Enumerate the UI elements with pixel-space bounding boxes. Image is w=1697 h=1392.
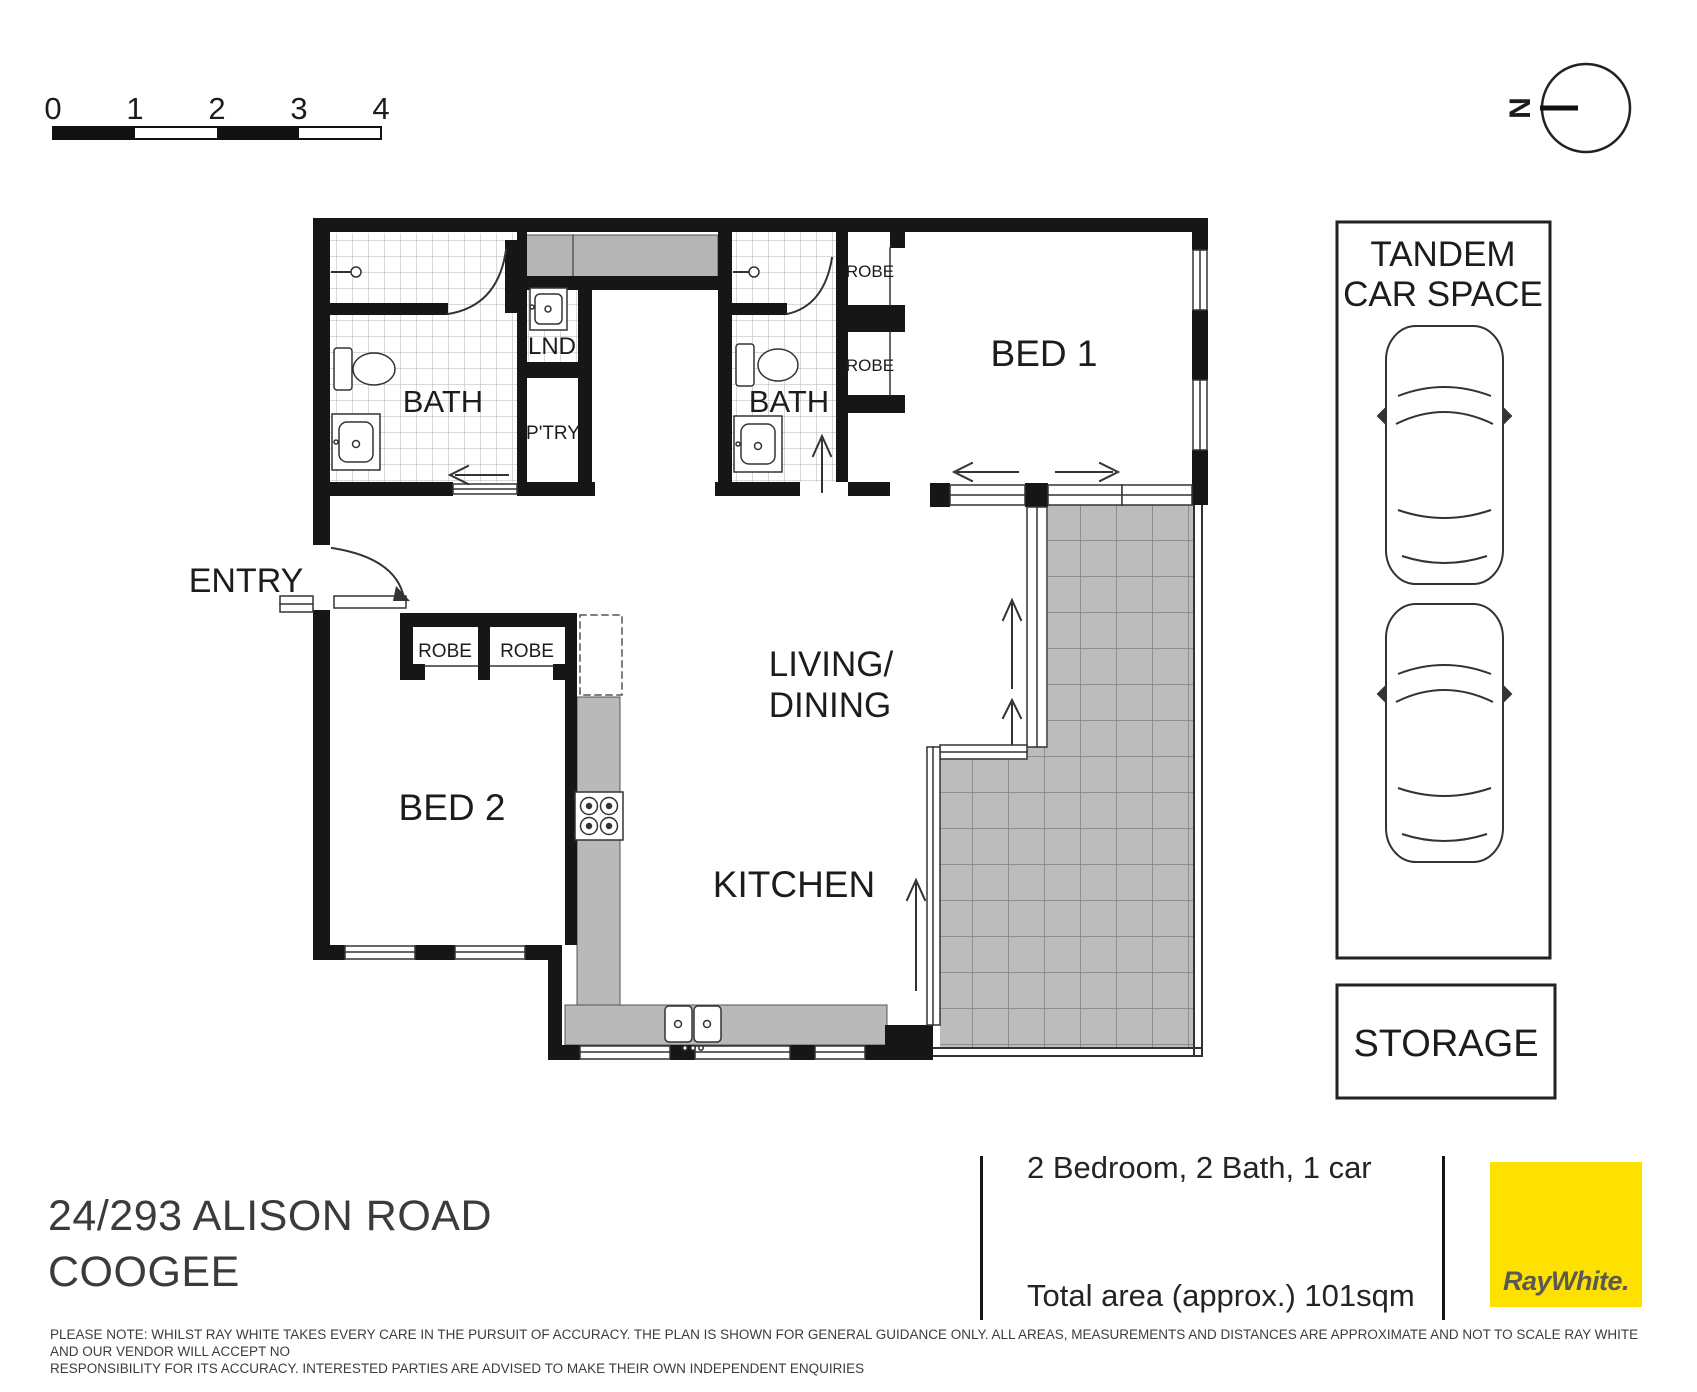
car-space-label-line2: CAR SPACE [1343, 275, 1543, 314]
bed2-robe-left-label: ROBE [418, 641, 472, 662]
address-line2: COOGEE [48, 1244, 492, 1300]
scale-tick-3: 3 [290, 91, 307, 126]
disclaimer-line1: PLEASE NOTE: WHILST RAY WHITE TAKES EVER… [50, 1326, 1660, 1360]
bed2-label: BED 2 [399, 787, 506, 828]
property-summary: 2 Bedroom, 2 Bath, 1 car [1027, 1150, 1372, 1186]
storage-box: STORAGE [1337, 985, 1555, 1098]
scale-tick-0: 0 [44, 91, 61, 126]
toilet-icon [334, 348, 352, 390]
disclaimer-line2: RESPONSIBILITY FOR ITS ACCURACY. INTERES… [50, 1360, 1660, 1377]
laundry-label: LND [528, 333, 576, 360]
kitchen-counter-horizontal [565, 1005, 887, 1045]
car-space-label-line1: TANDEM [1370, 235, 1515, 274]
basin-icon [734, 416, 782, 472]
bed1-robe-bottom-label: ROBE [846, 356, 894, 375]
living-label-line2: DINING [769, 686, 892, 725]
balcony-floor-lower [940, 747, 1194, 1048]
storage-label: STORAGE [1353, 1023, 1538, 1065]
kitchen-label: KITCHEN [713, 864, 875, 905]
scale-tick-2: 2 [208, 91, 225, 126]
toilet-icon [736, 344, 754, 386]
linen-cupboard [525, 235, 718, 278]
bath1-label: BATH [403, 384, 483, 419]
address-line1: 24/293 ALISON ROAD [48, 1188, 492, 1244]
raywhite-logo: RayWhite. [1490, 1162, 1642, 1307]
pantry-label: P'TRY [526, 423, 580, 444]
kitchen-overhead-cupboard [580, 615, 622, 695]
balcony-floor [1048, 505, 1194, 747]
bed1-robe-top-label: ROBE [846, 262, 894, 281]
property-address: 24/293 ALISON ROAD COOGEE [48, 1188, 492, 1300]
bed1-label: BED 1 [991, 333, 1098, 374]
total-area: Total area (approx.) 101sqm [1027, 1278, 1415, 1314]
cooktop-icon [575, 792, 623, 840]
scale-tick-4: 4 [372, 91, 389, 126]
scale-bar-icon: 0 1 2 3 4 [44, 91, 389, 139]
footer-divider-left [980, 1156, 983, 1320]
living-label-line1: LIVING/ [769, 645, 894, 684]
footer-divider-right [1442, 1156, 1445, 1320]
north-compass-icon: N [1504, 64, 1630, 152]
bed2-robe-right-label: ROBE [500, 641, 554, 662]
floor-plan: BATH LND P'TRY BATH ROBE ROBE BED 1 ENTR… [189, 218, 1208, 1060]
entry-label: ENTRY [189, 562, 304, 600]
bath2-label: BATH [749, 384, 829, 419]
scale-tick-1: 1 [126, 91, 143, 126]
car-icon [1378, 604, 1511, 862]
tandem-car-space: TANDEM CAR SPACE [1337, 222, 1550, 958]
kitchen-counter-vertical [577, 697, 620, 1005]
entry-door-arc [332, 548, 404, 598]
north-label: N [1504, 97, 1537, 119]
raywhite-logo-text: RayWhite. [1503, 1266, 1629, 1297]
car-icon [1378, 326, 1511, 584]
basin-icon [332, 414, 380, 470]
disclaimer: PLEASE NOTE: WHILST RAY WHITE TAKES EVER… [50, 1326, 1660, 1377]
floor-plan-page: { "scale_bar": { "labels": ["0", "1", "2… [0, 0, 1697, 1392]
laundry-tub-icon [530, 288, 567, 330]
